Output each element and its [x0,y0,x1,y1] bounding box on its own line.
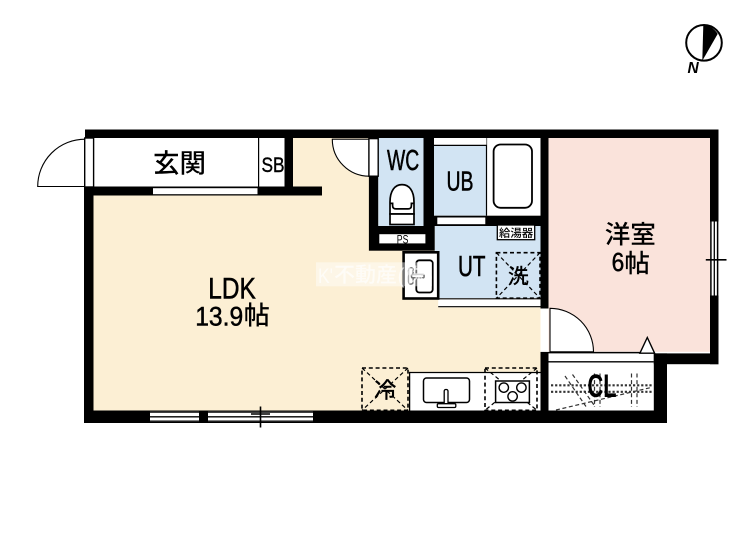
svg-text:CL: CL [588,368,617,404]
svg-text:N: N [688,60,700,77]
svg-text:(: ( [398,265,405,288]
svg-text:WC: WC [387,145,419,177]
svg-text:): ) [426,265,433,288]
svg-text:6: 6 [612,249,625,277]
svg-text:UB: UB [447,165,474,196]
svg-text:SB: SB [262,153,285,177]
svg-text:K': K' [318,265,333,288]
svg-text:UT: UT [458,251,486,283]
svg-text:13.9: 13.9 [195,301,243,331]
svg-text:PS: PS [397,234,409,246]
